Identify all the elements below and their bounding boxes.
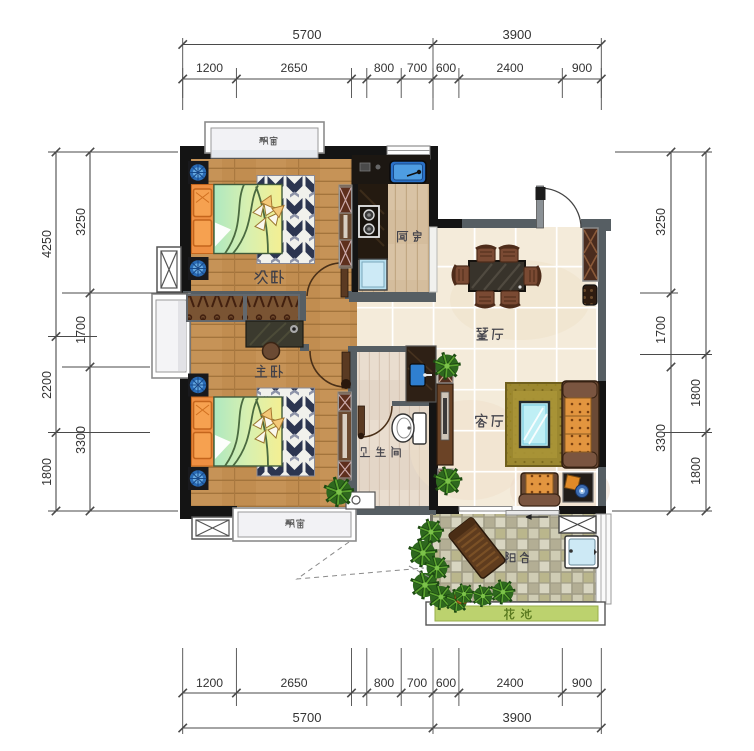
svg-text:1800: 1800 [40, 458, 54, 486]
svg-text:3300: 3300 [654, 424, 668, 452]
svg-text:1800: 1800 [689, 457, 703, 485]
svg-text:1700: 1700 [74, 316, 88, 344]
svg-text:3250: 3250 [654, 208, 668, 236]
svg-text:3900: 3900 [503, 27, 532, 42]
svg-text:1800: 1800 [689, 379, 703, 407]
svg-text:5700: 5700 [293, 710, 322, 725]
svg-text:1700: 1700 [654, 316, 668, 344]
svg-text:900: 900 [572, 676, 593, 690]
svg-text:1200: 1200 [196, 676, 223, 690]
svg-text:2400: 2400 [496, 676, 523, 690]
svg-text:600: 600 [436, 676, 457, 690]
svg-text:800: 800 [374, 676, 395, 690]
svg-text:600: 600 [436, 61, 457, 75]
svg-text:800: 800 [374, 61, 395, 75]
svg-text:3900: 3900 [503, 710, 532, 725]
svg-text:3300: 3300 [74, 426, 88, 454]
svg-text:2650: 2650 [280, 676, 307, 690]
svg-text:2200: 2200 [40, 371, 54, 399]
svg-text:700: 700 [407, 61, 428, 75]
svg-text:3250: 3250 [74, 208, 88, 236]
svg-text:700: 700 [407, 676, 428, 690]
svg-text:2400: 2400 [496, 61, 523, 75]
svg-text:1200: 1200 [196, 61, 223, 75]
svg-text:4250: 4250 [40, 230, 54, 258]
svg-text:900: 900 [572, 61, 593, 75]
svg-text:2650: 2650 [280, 61, 307, 75]
svg-text:5700: 5700 [293, 27, 322, 42]
